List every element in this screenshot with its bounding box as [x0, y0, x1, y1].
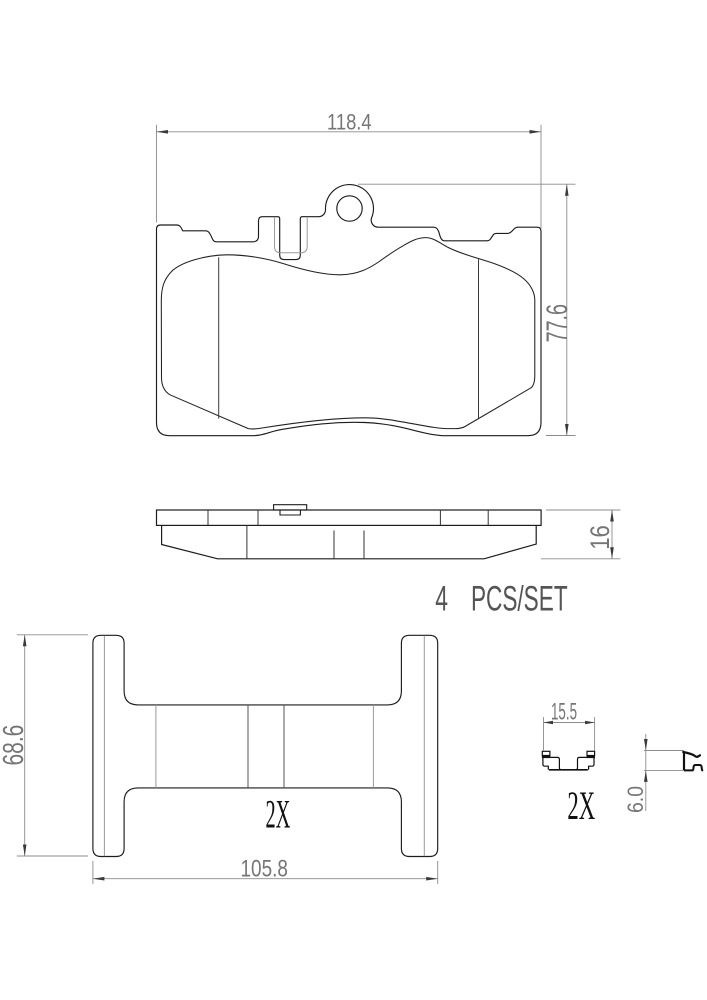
svg-text:15.5: 15.5	[551, 699, 577, 725]
svg-text:68.6: 68.6	[0, 725, 29, 766]
svg-text:2X: 2X	[567, 783, 595, 828]
svg-text:105.8: 105.8	[241, 855, 288, 882]
svg-text:2X: 2X	[265, 791, 290, 836]
svg-text:118.4: 118.4	[327, 109, 372, 134]
svg-text:77.6: 77.6	[541, 304, 574, 342]
svg-text:16: 16	[585, 525, 615, 550]
svg-text:4: 4	[435, 580, 448, 619]
svg-text:PCS/SET: PCS/SET	[471, 580, 568, 619]
svg-text:6.0: 6.0	[623, 786, 648, 813]
